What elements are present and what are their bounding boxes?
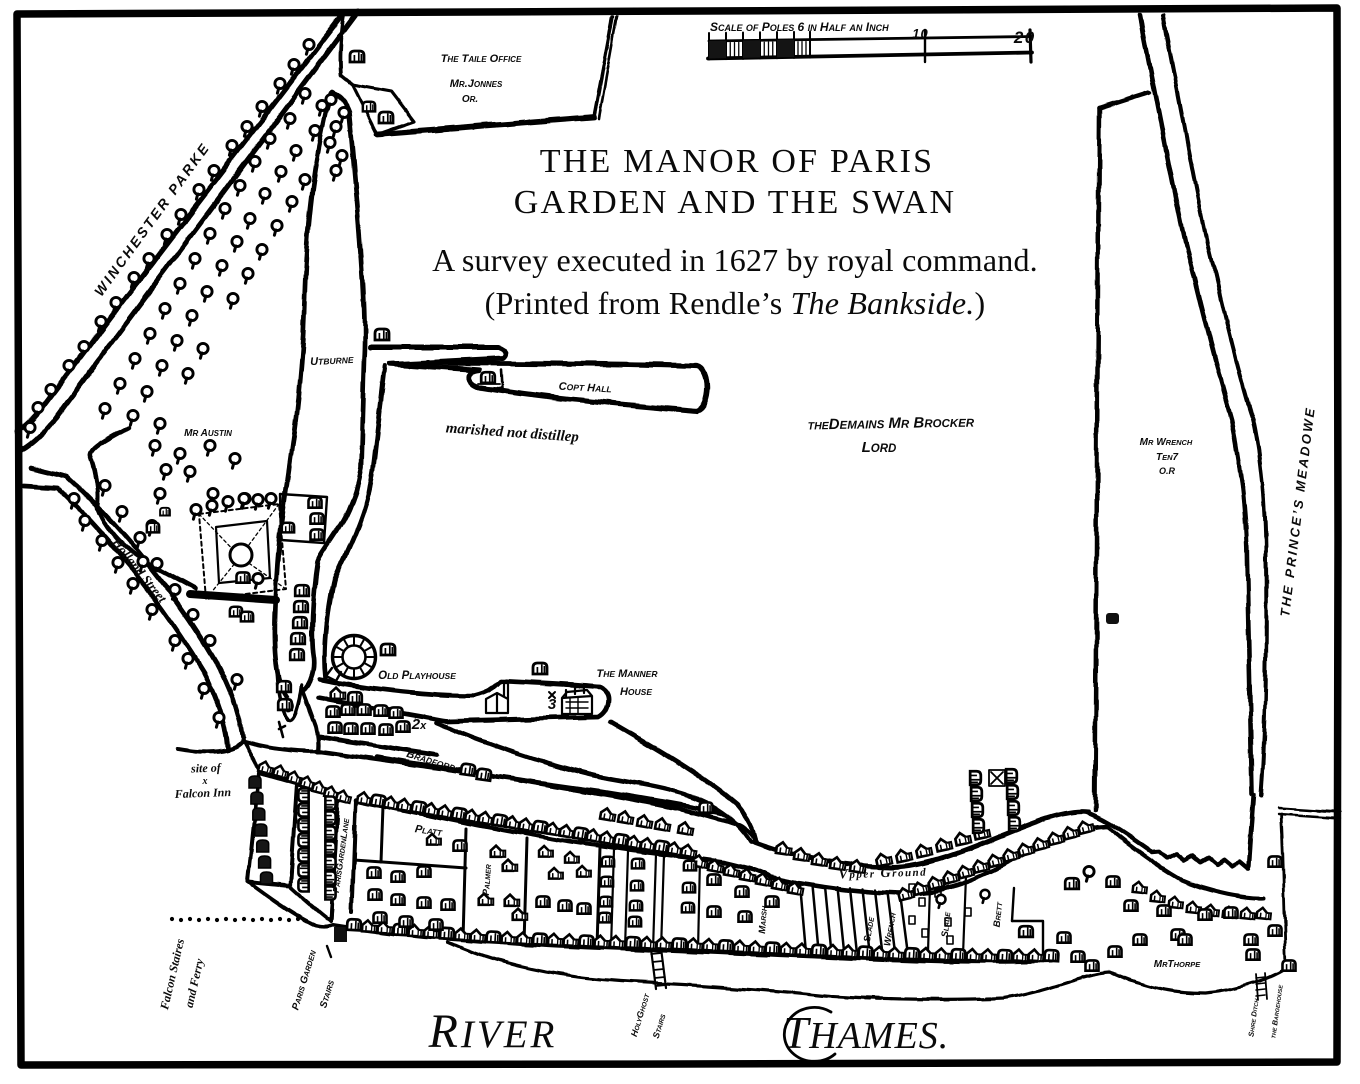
svg-text:MR AUSTIN: MR AUSTIN — [184, 428, 232, 439]
svg-text:THE MANNER: THE MANNER — [596, 668, 658, 680]
svg-text:A survey executed in 1627 by r: A survey executed in 1627 by royal comma… — [432, 242, 1038, 278]
svg-text:(Printed from Rendle’s The Ban: (Printed from Rendle’s The Bankside.) — [485, 285, 986, 321]
svg-text:OLD PLAYHOUSE: OLD PLAYHOUSE — [378, 670, 456, 682]
svg-text:GARDEN AND THE SWAN: GARDEN AND THE SWAN — [514, 184, 957, 221]
svg-text:THE TAILE OFFICE: THE TAILE OFFICE — [441, 53, 522, 65]
svg-text:3: 3 — [548, 696, 557, 713]
svg-text:RIVER: RIVER — [428, 1005, 558, 1058]
svg-text:2 0: 2 0 — [1013, 28, 1035, 47]
svg-text:OR.: OR. — [462, 94, 478, 105]
svg-text:site of: site of — [190, 760, 222, 775]
svg-text:TEN7: TEN7 — [1156, 452, 1179, 463]
svg-text:THAMES.: THAMES. — [783, 1007, 950, 1058]
svg-text:HOUSE: HOUSE — [620, 686, 652, 698]
svg-text:Falcon Inn: Falcon Inn — [173, 785, 231, 801]
svg-text:THE MANOR OF PARIS: THE MANOR OF PARIS — [540, 143, 934, 180]
svg-text:SCALE OF POLES 6 IN HALF AN I: SCALE OF POLES 6 IN HALF AN INCH — [710, 20, 889, 34]
svg-text:MR WRENCH: MR WRENCH — [1140, 437, 1193, 448]
svg-text:MRTHORPE: MRTHORPE — [1154, 959, 1202, 970]
svg-text:MR.JONNES: MR.JONNES — [450, 78, 503, 90]
svg-text:O.R: O.R — [1159, 466, 1176, 476]
